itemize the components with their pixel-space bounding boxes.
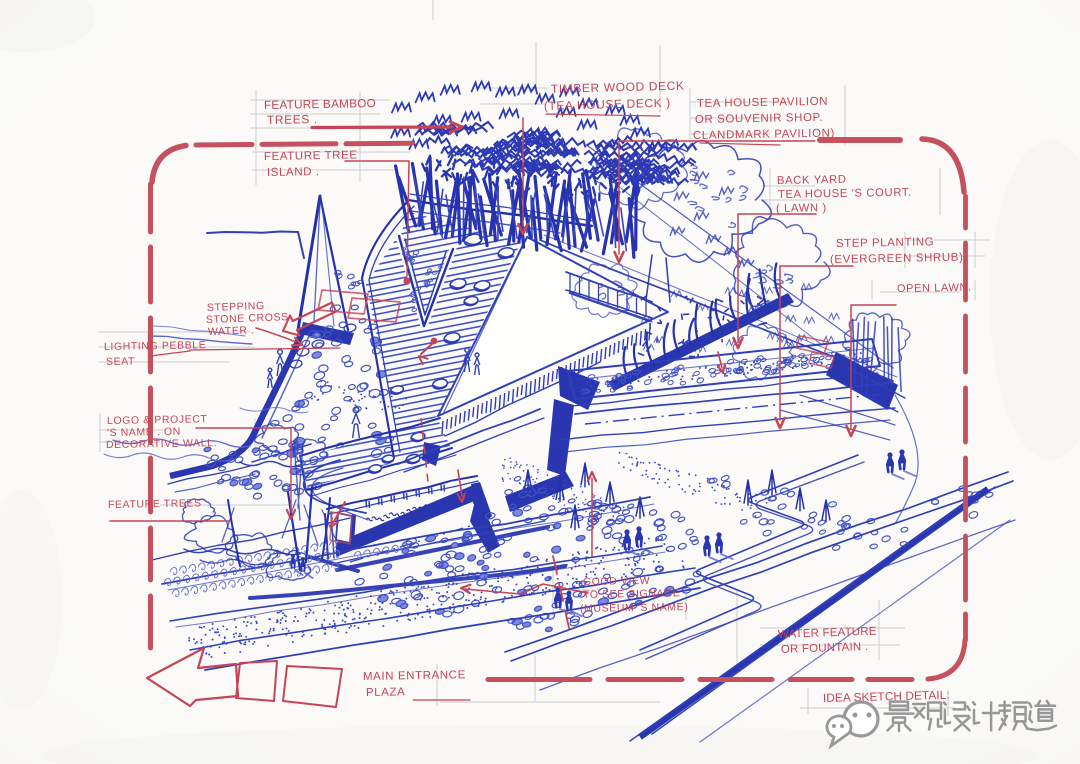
svg-text:GOOD VIEW: GOOD VIEW (583, 575, 650, 588)
svg-text:ISLAND .: ISLAND . (267, 166, 320, 179)
svg-text:STEP PLANTING: STEP PLANTING (836, 236, 935, 250)
svg-text:(EVERGREEN SHRUB): (EVERGREEN SHRUB) (830, 252, 964, 266)
svg-text:LIGHTING PEBBLE: LIGHTING PEBBLE (104, 339, 207, 353)
svg-text:OR SOUVENIR SHOP.: OR SOUVENIR SHOP. (695, 112, 823, 126)
svg-text:MAIN ENTRANCE: MAIN ENTRANCE (363, 669, 466, 683)
svg-text:(MUSEUM 'S NAME): (MUSEUM 'S NAME) (580, 601, 689, 615)
svg-text:TEA HOUSE PAVILION: TEA HOUSE PAVILION (697, 96, 828, 110)
svg-text:TREES .: TREES . (267, 112, 318, 127)
svg-text:WATER .: WATER . (208, 324, 255, 338)
svg-text:( LAWN ): ( LAWN ) (776, 202, 827, 215)
svg-text:OPEN LAWN.: OPEN LAWN. (897, 282, 972, 295)
svg-text:LOGO & PROJECT: LOGO & PROJECT (107, 413, 208, 427)
svg-text:TEA HOUSE 'S COURT.: TEA HOUSE 'S COURT. (778, 187, 912, 201)
svg-text:PLAZA: PLAZA (366, 686, 406, 699)
svg-text:CLANDMARK PAVILION): CLANDMARK PAVILION) (693, 128, 835, 142)
svg-text:SEAT: SEAT (106, 355, 135, 368)
svg-text:BACK YARD: BACK YARD (777, 174, 847, 187)
svg-text:FEATURE BAMBOO: FEATURE BAMBOO (264, 96, 376, 112)
svg-text:FEATURE TREES: FEATURE TREES (108, 497, 202, 511)
svg-text:DECORATIVE WALL.: DECORATIVE WALL. (106, 437, 217, 451)
svg-text:TO SEE SIGNAGE: TO SEE SIGNAGE (583, 587, 681, 601)
svg-text:FEATURE TREE: FEATURE TREE (264, 149, 358, 163)
